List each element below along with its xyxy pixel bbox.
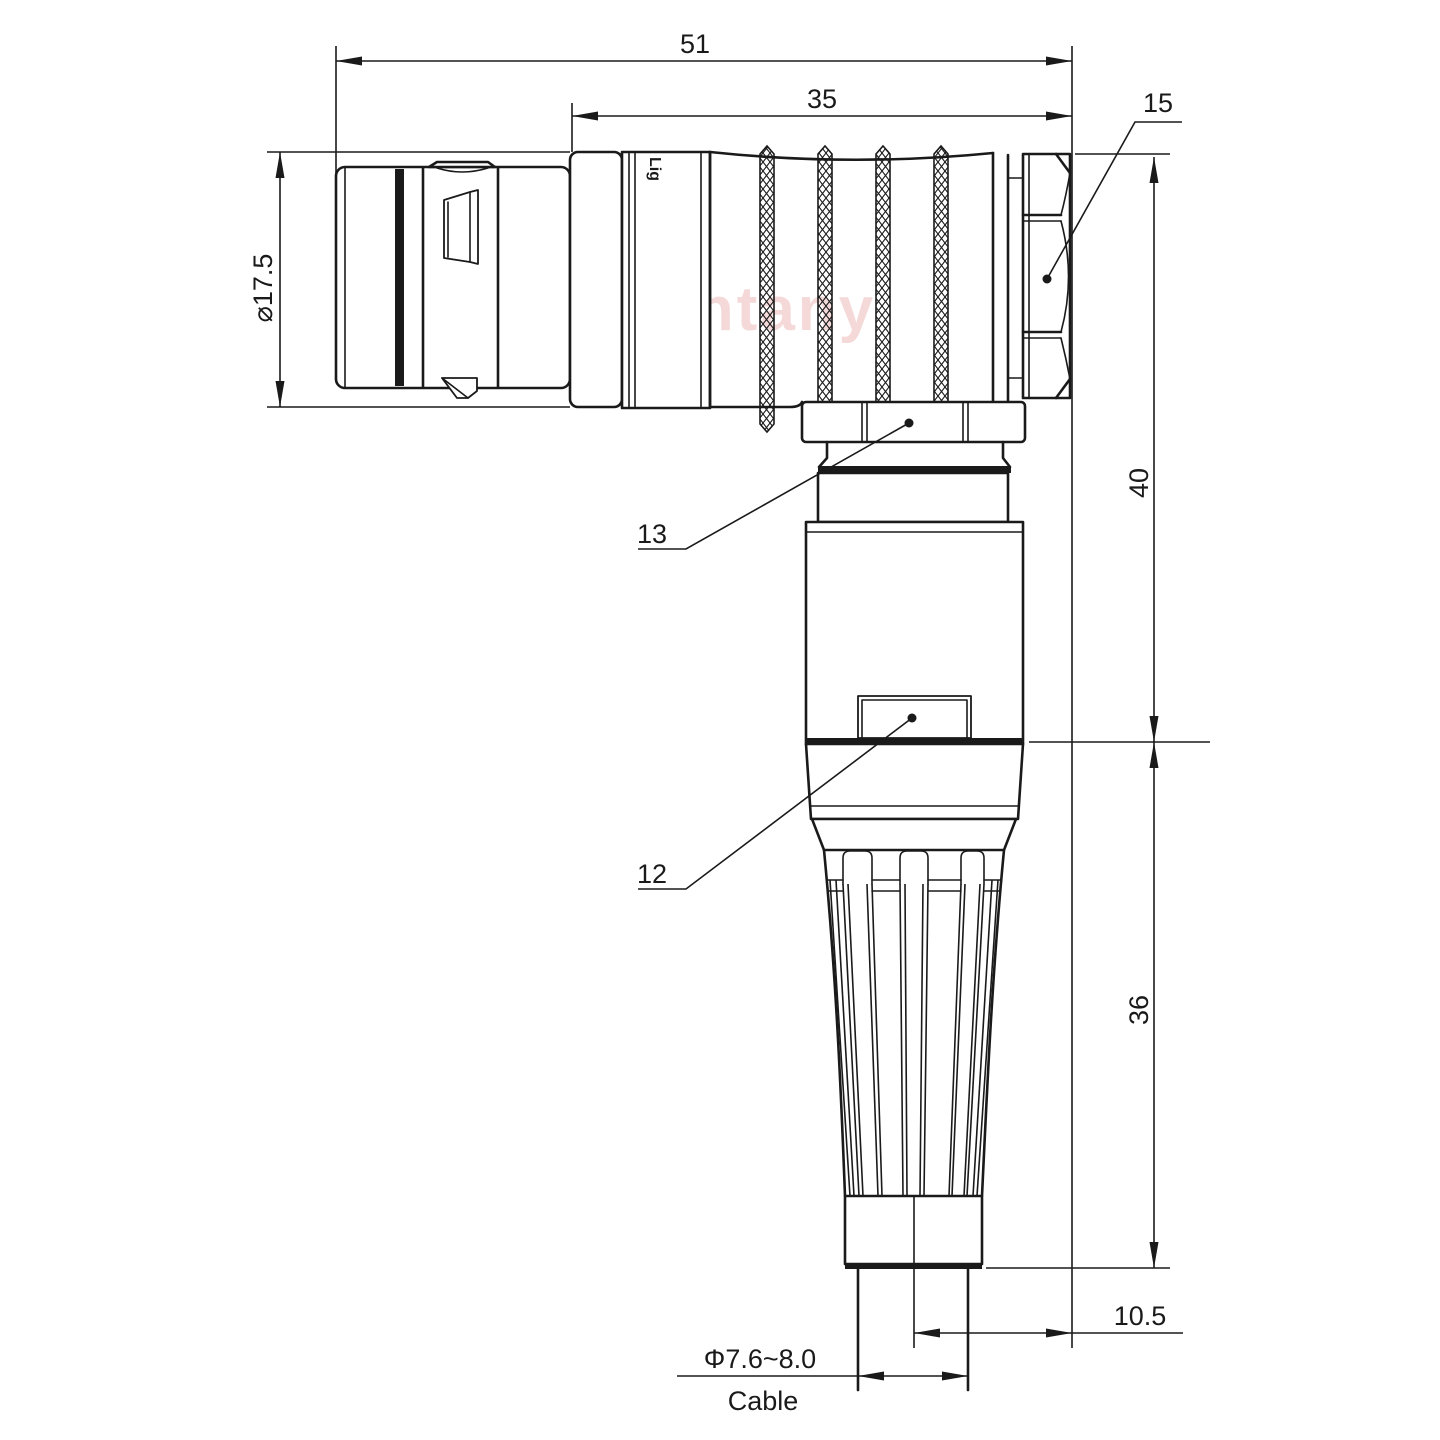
- arrow-35-right: [1046, 112, 1072, 121]
- technical-drawing: Lightany Lig: [0, 0, 1440, 1440]
- cable: [858, 1269, 968, 1390]
- arrow-35-left: [572, 112, 598, 121]
- leader-dot-12: [908, 714, 917, 723]
- dim-label-51: 51: [680, 29, 710, 59]
- leader-dot-15: [1043, 275, 1052, 284]
- arrow-dia-bottom: [276, 381, 285, 407]
- dimension-front-length: 35: [572, 84, 1072, 121]
- dim-label-15: 15: [1143, 88, 1173, 118]
- ring-section: Lig: [622, 152, 710, 408]
- plug-collar: [570, 152, 622, 407]
- dim-label-cable-dia: Φ7.6~8.0: [704, 1344, 816, 1374]
- dimension-overall-length: 51: [336, 29, 1072, 66]
- coupling-nut-body: [802, 402, 1025, 442]
- neck-section: [818, 442, 1011, 522]
- arrow-cable-right: [942, 1372, 968, 1381]
- transition-upper: [806, 744, 1023, 819]
- arrow-40-bottom: [1150, 716, 1159, 742]
- arrow-cable-left: [858, 1372, 884, 1381]
- knurl-band-3: [876, 146, 890, 423]
- plug-shell: [336, 162, 570, 398]
- dim-label-35: 35: [807, 84, 837, 114]
- dim-label-40: 40: [1124, 468, 1154, 498]
- dim-label-105: 10.5: [1114, 1301, 1167, 1331]
- dim-label-12: 12: [637, 859, 667, 889]
- knurl-band-1: [760, 146, 774, 432]
- keyway-window: [444, 190, 478, 264]
- finger-tab-3: [961, 851, 984, 884]
- transition-taper: [812, 819, 1016, 850]
- knurl-band-4: [934, 146, 948, 418]
- dimension-cable-offset: 10.5: [914, 1301, 1183, 1338]
- dimension-plug-diameter: ⌀17.5: [248, 152, 285, 407]
- neck-right: [1003, 442, 1010, 467]
- cone-right-edge: [982, 850, 1004, 1196]
- arrow-105-right: [1046, 1329, 1072, 1338]
- cable-collar: [845, 1196, 982, 1269]
- arrow-36-top: [1150, 742, 1159, 768]
- collar-bottom-band: [845, 1263, 982, 1269]
- arrow-51-left: [336, 57, 362, 66]
- connector-side-view: Lig: [336, 146, 1070, 1390]
- arrow-40-top: [1150, 157, 1159, 183]
- upper-sleeve: [818, 473, 1008, 522]
- knurl-band-2: [818, 146, 832, 429]
- dim-label-cable: Cable: [728, 1386, 799, 1416]
- arrow-dia-top: [276, 152, 285, 178]
- finger-tab-1: [843, 851, 872, 884]
- coupling-nut: [802, 402, 1025, 442]
- dim-label-13: 13: [637, 519, 667, 549]
- cone-left-edge: [824, 850, 845, 1196]
- housing-body: [806, 522, 1023, 744]
- finger-tab-2: [900, 851, 928, 884]
- arrow-105-left: [914, 1329, 940, 1338]
- dimension-heights: 40 36: [1124, 157, 1159, 1268]
- arrow-36-bottom: [1150, 1242, 1159, 1268]
- neck-left: [819, 442, 827, 467]
- strain-relief: [824, 850, 1004, 1196]
- dim-label-36: 36: [1124, 995, 1154, 1025]
- dimension-cable-diameter: Φ7.6~8.0 Cable: [677, 1344, 968, 1416]
- cone-flutes: [830, 880, 998, 1196]
- arrow-51-right: [1046, 57, 1072, 66]
- body-marking: Lig: [646, 157, 663, 181]
- leader-dot-13: [905, 419, 914, 428]
- plug-band: [395, 169, 404, 386]
- drawing-page: Lightany Lig: [0, 0, 1440, 1440]
- transition-block: [806, 744, 1023, 850]
- dim-label-dia: ⌀17.5: [248, 254, 278, 323]
- plug-top-bump: [429, 162, 495, 167]
- barrel-top-edge: [710, 152, 993, 160]
